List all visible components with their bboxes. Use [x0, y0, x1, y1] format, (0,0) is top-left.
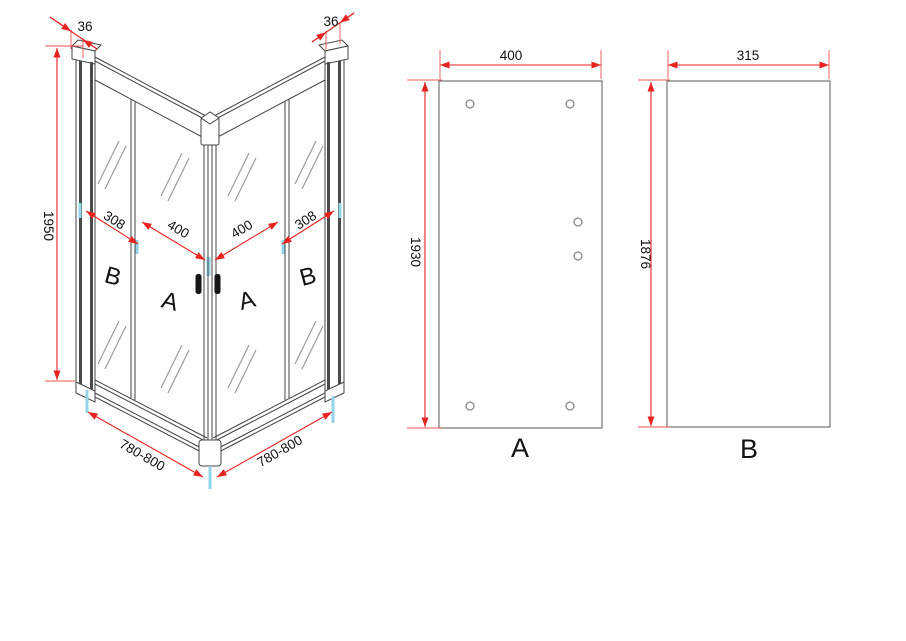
panel-a-width-label: 400	[500, 48, 523, 63]
dim-height-label: 1950	[41, 211, 56, 241]
left-door-handle[interactable]	[196, 274, 202, 294]
right-wall-structure	[212, 40, 348, 455]
technical-drawing-page: 36 36 1950 308 400 400 308 780-800 780-8…	[0, 0, 906, 641]
corner-post-bottom-cap	[199, 440, 221, 466]
corner-isometric-view: 36 36 1950 308 400 400 308 780-800 780-8…	[41, 13, 354, 489]
shower-enclosure-drawing: 36 36 1950 308 400 400 308 780-800 780-8…	[0, 0, 906, 641]
fixed-panel-right-letter: B	[297, 262, 319, 292]
panel-a-height-label: 1930	[408, 237, 423, 267]
panel-b-height-label: 1876	[638, 239, 653, 269]
dim-width-left-label: 780-800	[117, 436, 167, 474]
panel-a-elevation: 400 1930 A	[407, 48, 602, 463]
panel-b-width-label: 315	[737, 48, 760, 63]
door-panel-right-letter: A	[236, 286, 258, 316]
fixed-panel-left-letter: B	[102, 262, 124, 292]
dim-fixed-left-label: 308	[101, 208, 128, 233]
right-door-handle[interactable]	[215, 274, 221, 294]
panel-b-glass	[667, 81, 830, 427]
dim-profile-left-label: 36	[77, 19, 92, 34]
dim-fixed-right-label: 308	[292, 208, 319, 233]
panel-a-title: A	[511, 433, 529, 463]
dim-profile-right-label: 36	[323, 14, 338, 29]
panel-b-title: B	[740, 434, 758, 464]
panel-b-elevation: 315 1876 B	[638, 48, 830, 464]
door-panel-left-letter: A	[159, 287, 181, 317]
left-wall-structure	[72, 40, 208, 455]
